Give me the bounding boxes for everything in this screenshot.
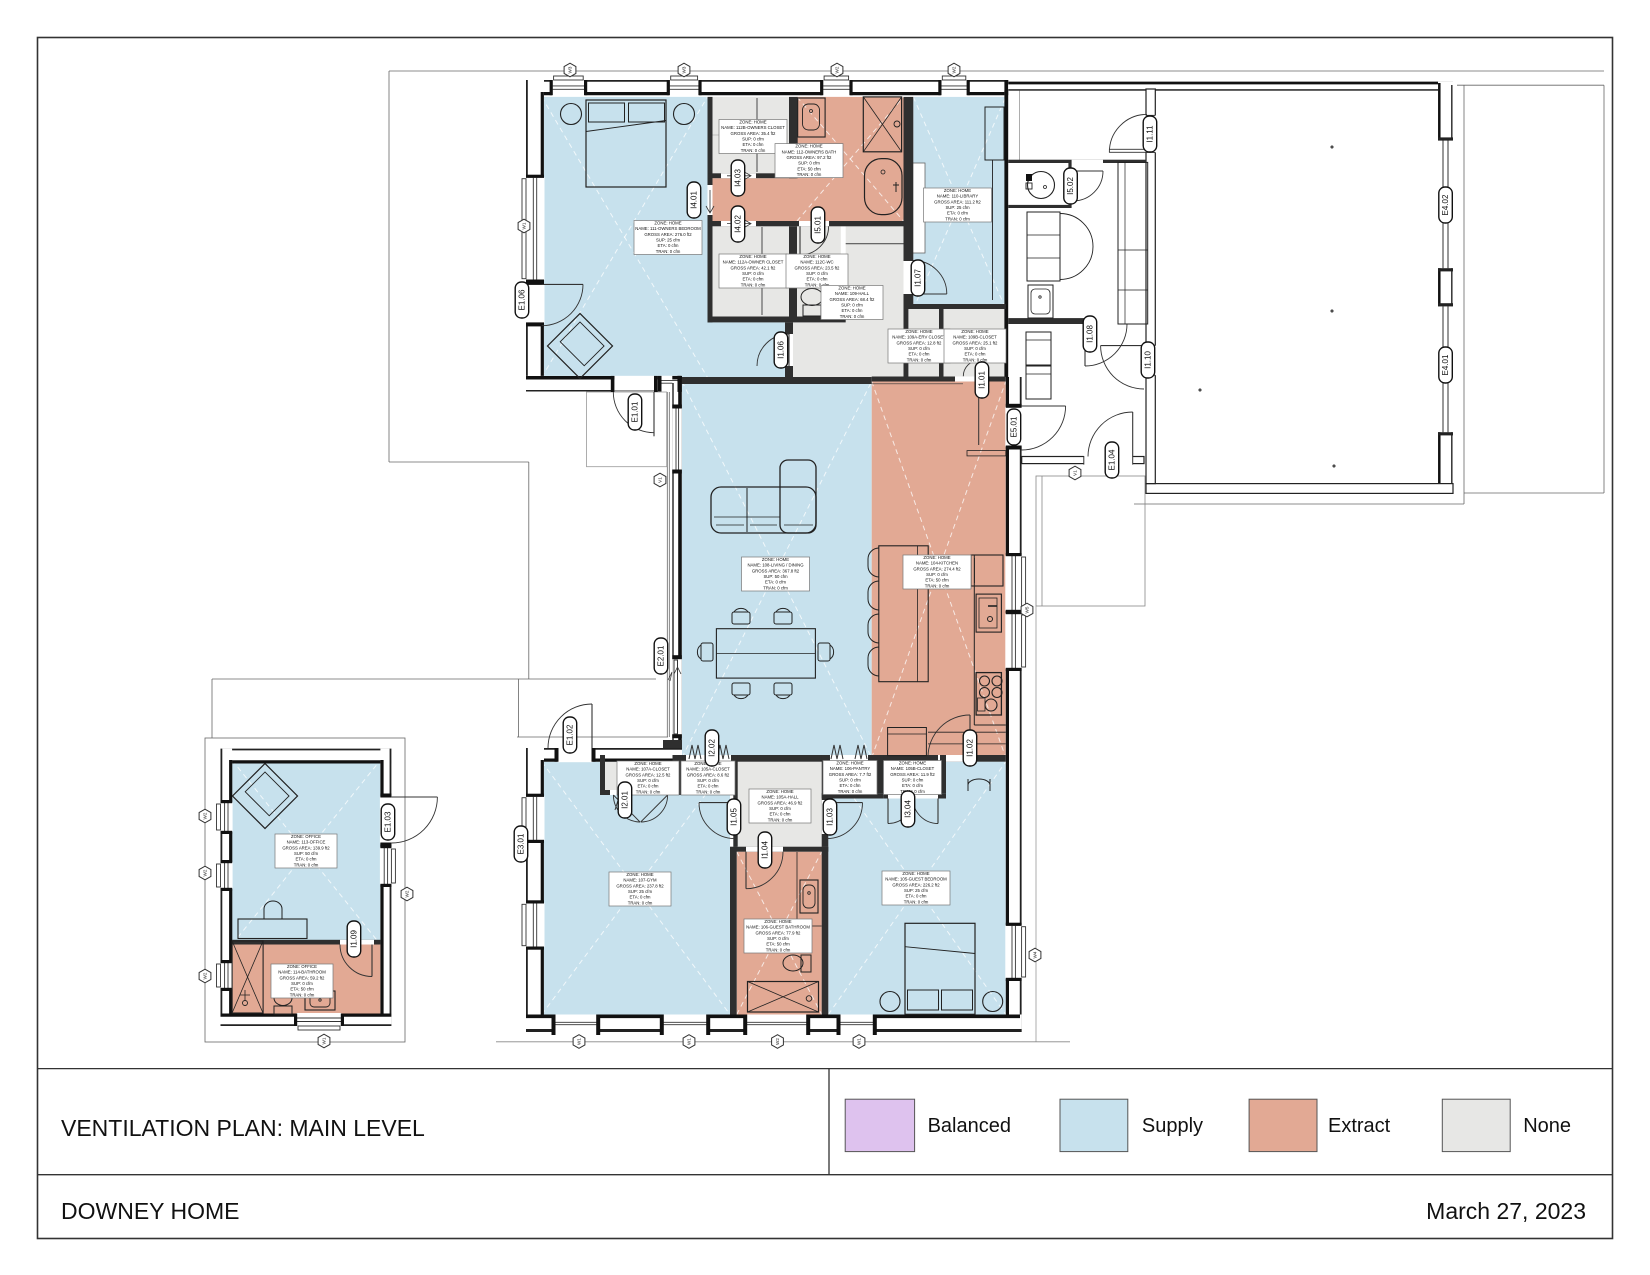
svg-text:I4.02: I4.02 — [734, 215, 743, 233]
svg-text:TRAN: 0 cfm: TRAN: 0 cfm — [763, 585, 788, 590]
svg-text:NAME: 110-LIBRARY: NAME: 110-LIBRARY — [937, 194, 979, 199]
svg-text:TRAN: 0 cfm: TRAN: 0 cfm — [907, 357, 932, 362]
svg-text:GROSS AREA: 12.5 ft2: GROSS AREA: 12.5 ft2 — [626, 772, 672, 777]
svg-text:TRAN: 0 cfm: TRAN: 0 cfm — [290, 992, 315, 997]
svg-text:GROSS AREA: 7.7 ft2: GROSS AREA: 7.7 ft2 — [829, 772, 872, 777]
svg-text:SUP: 25 cfm: SUP: 25 cfm — [628, 889, 653, 894]
svg-text:SUP: 50 cfm: SUP: 50 cfm — [763, 574, 788, 579]
svg-text:I5.01: I5.01 — [814, 216, 823, 234]
svg-text:ETA: 0 cfm: ETA: 0 cfm — [840, 783, 861, 788]
svg-text:E3.01: E3.01 — [517, 833, 526, 854]
svg-text:NAME: 109B-CLOSET: NAME: 109B-CLOSET — [953, 335, 997, 340]
svg-text:I2.02: I2.02 — [708, 739, 717, 757]
svg-text:TRAN: 0 cfm: TRAN: 0 cfm — [628, 900, 653, 905]
svg-text:I3.04: I3.04 — [904, 800, 913, 818]
svg-text:GROSS AREA: 97.2 ft2: GROSS AREA: 97.2 ft2 — [787, 155, 833, 160]
svg-text:ZONE: HOME: ZONE: HOME — [762, 557, 789, 562]
svg-text:I4.01: I4.01 — [690, 191, 699, 209]
svg-text:ETA: 50 cfm: ETA: 50 cfm — [925, 578, 949, 583]
svg-text:NAME: 107-GYM: NAME: 107-GYM — [623, 878, 657, 883]
svg-text:TRAN: 0 cfm: TRAN: 0 cfm — [696, 789, 721, 794]
svg-text:W2: W2 — [203, 972, 208, 979]
svg-text:I1.07: I1.07 — [914, 269, 923, 287]
svg-text:GROSS AREA: 25.1 ft2: GROSS AREA: 25.1 ft2 — [953, 340, 999, 345]
svg-text:GROSS AREA: 35.4 ft2: GROSS AREA: 35.4 ft2 — [731, 131, 777, 136]
svg-text:ETA: 0 cfm: ETA: 0 cfm — [765, 580, 786, 585]
svg-text:TRAN: 0 cfm: TRAN: 0 cfm — [636, 789, 661, 794]
svg-text:ETA: 50 cfm: ETA: 50 cfm — [797, 166, 821, 171]
svg-text:GROSS AREA: 42.1 ft2: GROSS AREA: 42.1 ft2 — [731, 265, 777, 270]
svg-text:ZONE: HOME: ZONE: HOME — [899, 761, 926, 766]
svg-text:W2: W2 — [775, 1038, 780, 1045]
svg-text:DOWNEY HOME: DOWNEY HOME — [61, 1198, 239, 1224]
svg-text:GROSS AREA: 23.5 ft2: GROSS AREA: 23.5 ft2 — [795, 265, 841, 270]
svg-text:W1: W1 — [522, 222, 527, 229]
svg-text:SUP: 0 cfm: SUP: 0 cfm — [742, 271, 764, 276]
svg-text:ZONE: HOME: ZONE: HOME — [905, 329, 932, 334]
svg-text:I1.04: I1.04 — [761, 841, 770, 859]
svg-text:SUP: 0 cfm: SUP: 0 cfm — [767, 936, 789, 941]
svg-text:W2: W2 — [405, 890, 410, 897]
svg-text:SUP: 0 cfm: SUP: 0 cfm — [908, 346, 930, 351]
svg-text:W1: W1 — [322, 1037, 327, 1044]
svg-text:E2.01: E2.01 — [657, 645, 666, 666]
svg-text:NAME: 109-HALL: NAME: 109-HALL — [835, 291, 870, 296]
svg-text:ZONE: HOME: ZONE: HOME — [766, 789, 793, 794]
svg-text:ETA: 50 cfm: ETA: 50 cfm — [766, 942, 790, 947]
svg-text:NAME: 106-PANTRY: NAME: 106-PANTRY — [830, 766, 871, 771]
svg-text:GROSS AREA: 46.9 ft2: GROSS AREA: 46.9 ft2 — [758, 800, 804, 805]
svg-text:NAME: 105-GUEST BEDROOM: NAME: 105-GUEST BEDROOM — [885, 877, 947, 882]
svg-text:TRAN: 0 cfm: TRAN: 0 cfm — [741, 148, 766, 153]
svg-text:E5.01: E5.01 — [1010, 416, 1019, 437]
svg-text:I1.06: I1.06 — [777, 341, 786, 359]
svg-text:ZONE: HOME: ZONE: HOME — [836, 761, 863, 766]
svg-text:SUP: 0 cfm: SUP: 0 cfm — [841, 303, 863, 308]
svg-text:ETA: 0 cfm: ETA: 0 cfm — [658, 243, 679, 248]
svg-text:SUP: 0 cfm: SUP: 0 cfm — [637, 778, 659, 783]
svg-text:E1.02: E1.02 — [566, 724, 575, 745]
svg-text:ETA: 0 cfm: ETA: 0 cfm — [842, 308, 863, 313]
svg-text:Balanced: Balanced — [928, 1115, 1011, 1137]
svg-text:E1.06: E1.06 — [518, 289, 527, 310]
svg-text:ETA: 0 cfm: ETA: 0 cfm — [902, 783, 923, 788]
svg-text:SUP: 25 cfm: SUP: 25 cfm — [656, 238, 681, 243]
svg-text:SUP: 25 cfm: SUP: 25 cfm — [945, 205, 970, 210]
svg-text:VENTILATION PLAN: MAIN LEVEL: VENTILATION PLAN: MAIN LEVEL — [61, 1115, 425, 1141]
svg-text:W1: W1 — [857, 1038, 862, 1045]
svg-text:W1: W1 — [577, 1038, 582, 1045]
svg-text:GROSS AREA: 77.9 ft2: GROSS AREA: 77.9 ft2 — [756, 930, 802, 935]
svg-text:TRAN: 0 cfm: TRAN: 0 cfm — [766, 947, 791, 952]
svg-text:GROSS AREA: 8.6 ft2: GROSS AREA: 8.6 ft2 — [687, 772, 730, 777]
svg-text:E1.01: E1.01 — [631, 401, 640, 422]
svg-text:ETA: 0 cfm: ETA: 0 cfm — [638, 784, 659, 789]
svg-text:NAME: 107A-CLOSET: NAME: 107A-CLOSET — [626, 767, 670, 772]
svg-text:E4.01: E4.01 — [1441, 354, 1450, 375]
svg-text:ZONE: HOME: ZONE: HOME — [739, 254, 766, 259]
svg-text:GROSS AREA: 367.8 ft2: GROSS AREA: 367.8 ft2 — [752, 568, 800, 573]
svg-text:W1: W1 — [687, 1038, 692, 1045]
svg-text:TRAN: 0 cfm: TRAN: 0 cfm — [840, 314, 865, 319]
svg-text:SUP: 0 cfm: SUP: 0 cfm — [839, 778, 861, 783]
svg-text:TRAN: 0 cfm: TRAN: 0 cfm — [945, 216, 970, 221]
svg-text:NAME: 114-BATHROOM: NAME: 114-BATHROOM — [278, 970, 326, 975]
svg-text:Supply: Supply — [1142, 1115, 1203, 1137]
svg-text:ETA: 0 cfm: ETA: 0 cfm — [296, 857, 317, 862]
svg-text:ETA: 50 cfm: ETA: 50 cfm — [290, 987, 314, 992]
svg-text:W4: W4 — [1033, 951, 1038, 958]
svg-text:E4.02: E4.02 — [1441, 194, 1450, 215]
svg-text:ZONE: HOME: ZONE: HOME — [838, 286, 865, 291]
svg-text:V1: V1 — [658, 477, 663, 483]
svg-text:NAME: 112B-OWNERS CLOSET: NAME: 112B-OWNERS CLOSET — [721, 125, 785, 130]
svg-text:W2: W2 — [203, 869, 208, 876]
svg-text:I2.01: I2.01 — [621, 791, 630, 809]
svg-text:ZONE: HOME: ZONE: HOME — [795, 144, 822, 149]
svg-text:ZONE: OFFICE: ZONE: OFFICE — [287, 964, 317, 969]
svg-text:E1.03: E1.03 — [384, 811, 393, 832]
svg-text:W3: W3 — [568, 66, 573, 73]
svg-text:GROSS AREA: 11.9 ft2: GROSS AREA: 11.9 ft2 — [890, 772, 935, 777]
svg-text:I1.09: I1.09 — [350, 930, 359, 948]
svg-text:NAME: 112A-OWNER CLOSET: NAME: 112A-OWNER CLOSET — [723, 260, 784, 265]
svg-text:NAME: 112-OWNERS BATH: NAME: 112-OWNERS BATH — [782, 149, 837, 154]
svg-text:SUP: 0 cfm: SUP: 0 cfm — [964, 346, 986, 351]
svg-text:March 27, 2023: March 27, 2023 — [1426, 1198, 1586, 1224]
svg-text:V1: V1 — [1073, 470, 1078, 476]
svg-text:SUP: 0 cfm: SUP: 0 cfm — [291, 981, 313, 986]
svg-text:I1.02: I1.02 — [966, 739, 975, 757]
svg-text:GROSS AREA: 274.4 ft2: GROSS AREA: 274.4 ft2 — [913, 566, 961, 571]
svg-text:ZONE: HOME: ZONE: HOME — [961, 329, 988, 334]
svg-text:ETA: 0 cfm: ETA: 0 cfm — [947, 211, 968, 216]
svg-text:ETA: 0 cfm: ETA: 0 cfm — [965, 352, 986, 357]
svg-text:TRAN: 0 cfm: TRAN: 0 cfm — [768, 817, 793, 822]
svg-text:I1.08: I1.08 — [1086, 325, 1095, 343]
svg-text:NAME: 109A-ERV CLOSET: NAME: 109A-ERV CLOSET — [892, 335, 946, 340]
svg-text:ZONE: HOME: ZONE: HOME — [764, 919, 791, 924]
svg-text:E1.04: E1.04 — [1108, 449, 1117, 470]
svg-text:TRAN: 0 cfm: TRAN: 0 cfm — [904, 899, 929, 904]
svg-text:ETA: 0 cfm: ETA: 0 cfm — [743, 277, 764, 282]
svg-text:W2: W2 — [835, 66, 840, 73]
svg-text:GROSS AREA: 59.2 ft2: GROSS AREA: 59.2 ft2 — [280, 975, 326, 980]
svg-text:I4.03: I4.03 — [734, 169, 743, 187]
svg-text:NAME: 111-OWNERS BEDROOM: NAME: 111-OWNERS BEDROOM — [635, 226, 701, 231]
svg-text:TRAN: 0 cfm: TRAN: 0 cfm — [656, 249, 681, 254]
svg-text:I1.03: I1.03 — [826, 808, 835, 826]
svg-text:I1.11: I1.11 — [1146, 125, 1155, 143]
svg-text:SUP: 0 cfm: SUP: 0 cfm — [926, 572, 948, 577]
svg-text:GROSS AREA: 68.4 ft2: GROSS AREA: 68.4 ft2 — [830, 297, 876, 302]
svg-text:TRAN: 0 cfm: TRAN: 0 cfm — [294, 862, 319, 867]
svg-text:SUP: 0 cfm: SUP: 0 cfm — [769, 806, 791, 811]
svg-text:Extract: Extract — [1328, 1115, 1391, 1137]
svg-text:ETA: 0 cfm: ETA: 0 cfm — [807, 277, 828, 282]
svg-text:NAME: 105A-HALL: NAME: 105A-HALL — [761, 795, 799, 800]
svg-text:None: None — [1523, 1115, 1571, 1137]
svg-text:ETA: 0 cfm: ETA: 0 cfm — [743, 142, 764, 147]
svg-text:SUP: 0 cfm: SUP: 0 cfm — [798, 161, 820, 166]
svg-text:NAME: 113-OFFICE: NAME: 113-OFFICE — [287, 840, 326, 845]
svg-text:NAME: 104-KITCHEN: NAME: 104-KITCHEN — [916, 561, 958, 566]
svg-text:I1.10: I1.10 — [1144, 351, 1153, 369]
svg-text:W5: W5 — [1025, 606, 1030, 613]
svg-text:I1.05: I1.05 — [730, 808, 739, 826]
svg-text:SUP: 25 cfm: SUP: 25 cfm — [904, 888, 929, 893]
svg-text:GROSS AREA: 111.2 ft2: GROSS AREA: 111.2 ft2 — [934, 199, 981, 204]
svg-text:ETA: 0 cfm: ETA: 0 cfm — [770, 812, 791, 817]
svg-text:W3: W3 — [682, 66, 687, 73]
svg-text:GROSS AREA: 276.0 ft2: GROSS AREA: 276.0 ft2 — [644, 232, 692, 237]
svg-text:TRAN: 0 cfm: TRAN: 0 cfm — [797, 172, 822, 177]
svg-text:ZONE: HOME: ZONE: HOME — [634, 761, 661, 766]
svg-text:ETA: 0 cfm: ETA: 0 cfm — [909, 352, 930, 357]
svg-text:ETA: 0 cfm: ETA: 0 cfm — [906, 894, 927, 899]
svg-text:ETA: 0 cfm: ETA: 0 cfm — [630, 895, 651, 900]
svg-text:NAME: 105A-CLOSET: NAME: 105A-CLOSET — [686, 767, 730, 772]
svg-text:SUP: 0 cfm: SUP: 0 cfm — [902, 778, 924, 783]
svg-text:SUP: 50 cfm: SUP: 50 cfm — [294, 851, 319, 856]
svg-text:ZONE: HOME: ZONE: HOME — [944, 188, 971, 193]
svg-text:ZONE: OFFICE: ZONE: OFFICE — [291, 834, 321, 839]
svg-text:W2: W2 — [203, 812, 208, 819]
svg-text:NAME: 108-LIVING / DINING: NAME: 108-LIVING / DINING — [747, 563, 804, 568]
svg-text:ZONE: HOME: ZONE: HOME — [739, 120, 766, 125]
svg-text:SUP: 0 cfm: SUP: 0 cfm — [806, 271, 828, 276]
svg-text:TRAN: 0 cfm: TRAN: 0 cfm — [741, 282, 766, 287]
svg-text:ETA: 0 cfm: ETA: 0 cfm — [698, 784, 719, 789]
svg-text:ZONE: HOME: ZONE: HOME — [923, 555, 950, 560]
svg-text:SUP: 0 cfm: SUP: 0 cfm — [697, 778, 719, 783]
svg-text:ZONE: HOME: ZONE: HOME — [626, 872, 653, 877]
svg-text:I5.02: I5.02 — [1066, 177, 1075, 195]
svg-text:TRAN: 0 cfm: TRAN: 0 cfm — [838, 789, 863, 794]
svg-text:ZONE: HOME: ZONE: HOME — [902, 871, 929, 876]
svg-text:NAME: 112C-WC: NAME: 112C-WC — [800, 260, 833, 265]
svg-text:NAME: 105B-CLOSET: NAME: 105B-CLOSET — [891, 766, 935, 771]
svg-text:W2: W2 — [952, 66, 957, 73]
svg-text:GROSS AREA: 226.2 ft2: GROSS AREA: 226.2 ft2 — [892, 882, 940, 887]
svg-text:I1.01: I1.01 — [978, 371, 987, 389]
svg-text:SUP: 0 cfm: SUP: 0 cfm — [742, 137, 764, 142]
svg-text:GROSS AREA: 12.8 ft2: GROSS AREA: 12.8 ft2 — [897, 340, 943, 345]
svg-text:GROSS AREA: 237.8 ft2: GROSS AREA: 237.8 ft2 — [616, 883, 664, 888]
svg-text:TRAN: 0 cfm: TRAN: 0 cfm — [925, 583, 950, 588]
svg-text:ZONE: HOME: ZONE: HOME — [654, 221, 681, 226]
svg-text:NAME: 106-GUEST BATHROOM: NAME: 106-GUEST BATHROOM — [746, 925, 810, 930]
svg-text:ZONE: HOME: ZONE: HOME — [803, 254, 830, 259]
svg-text:GROSS AREA: 139.9 ft2: GROSS AREA: 139.9 ft2 — [282, 845, 330, 850]
